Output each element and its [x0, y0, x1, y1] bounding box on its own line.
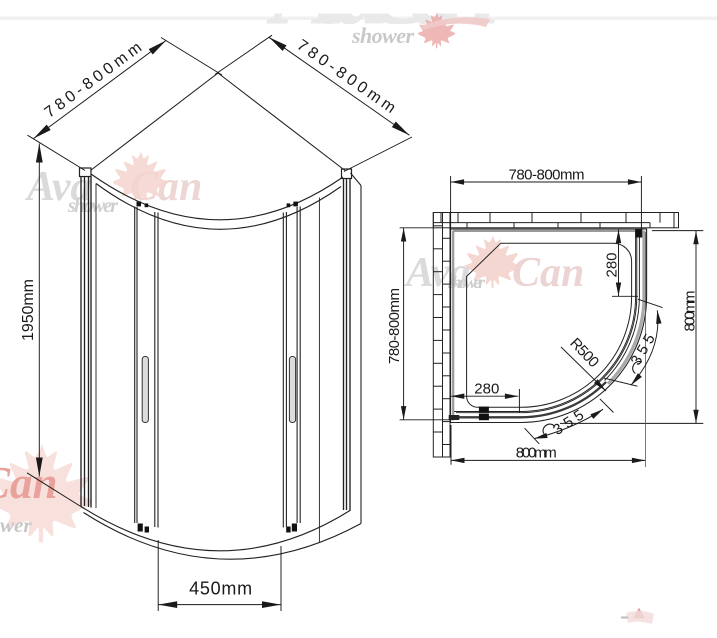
svg-text:Can: Can — [512, 250, 584, 296]
svg-text:Can: Can — [0, 458, 58, 508]
svg-text:shower: shower — [351, 23, 414, 48]
svg-text:280: 280 — [603, 253, 620, 278]
svg-text:800mm: 800mm — [516, 444, 557, 461]
svg-text:800mm: 800mm — [682, 291, 699, 332]
svg-text:780-800mm: 780-800mm — [509, 166, 585, 183]
svg-text:280: 280 — [474, 380, 499, 397]
svg-text:450mm: 450mm — [189, 579, 252, 599]
svg-text:1950mm: 1950mm — [20, 279, 37, 341]
svg-text:shower: shower — [67, 195, 118, 217]
svg-text:wer: wer — [0, 513, 32, 537]
svg-text:780-800mm: 780-800mm — [386, 288, 403, 364]
